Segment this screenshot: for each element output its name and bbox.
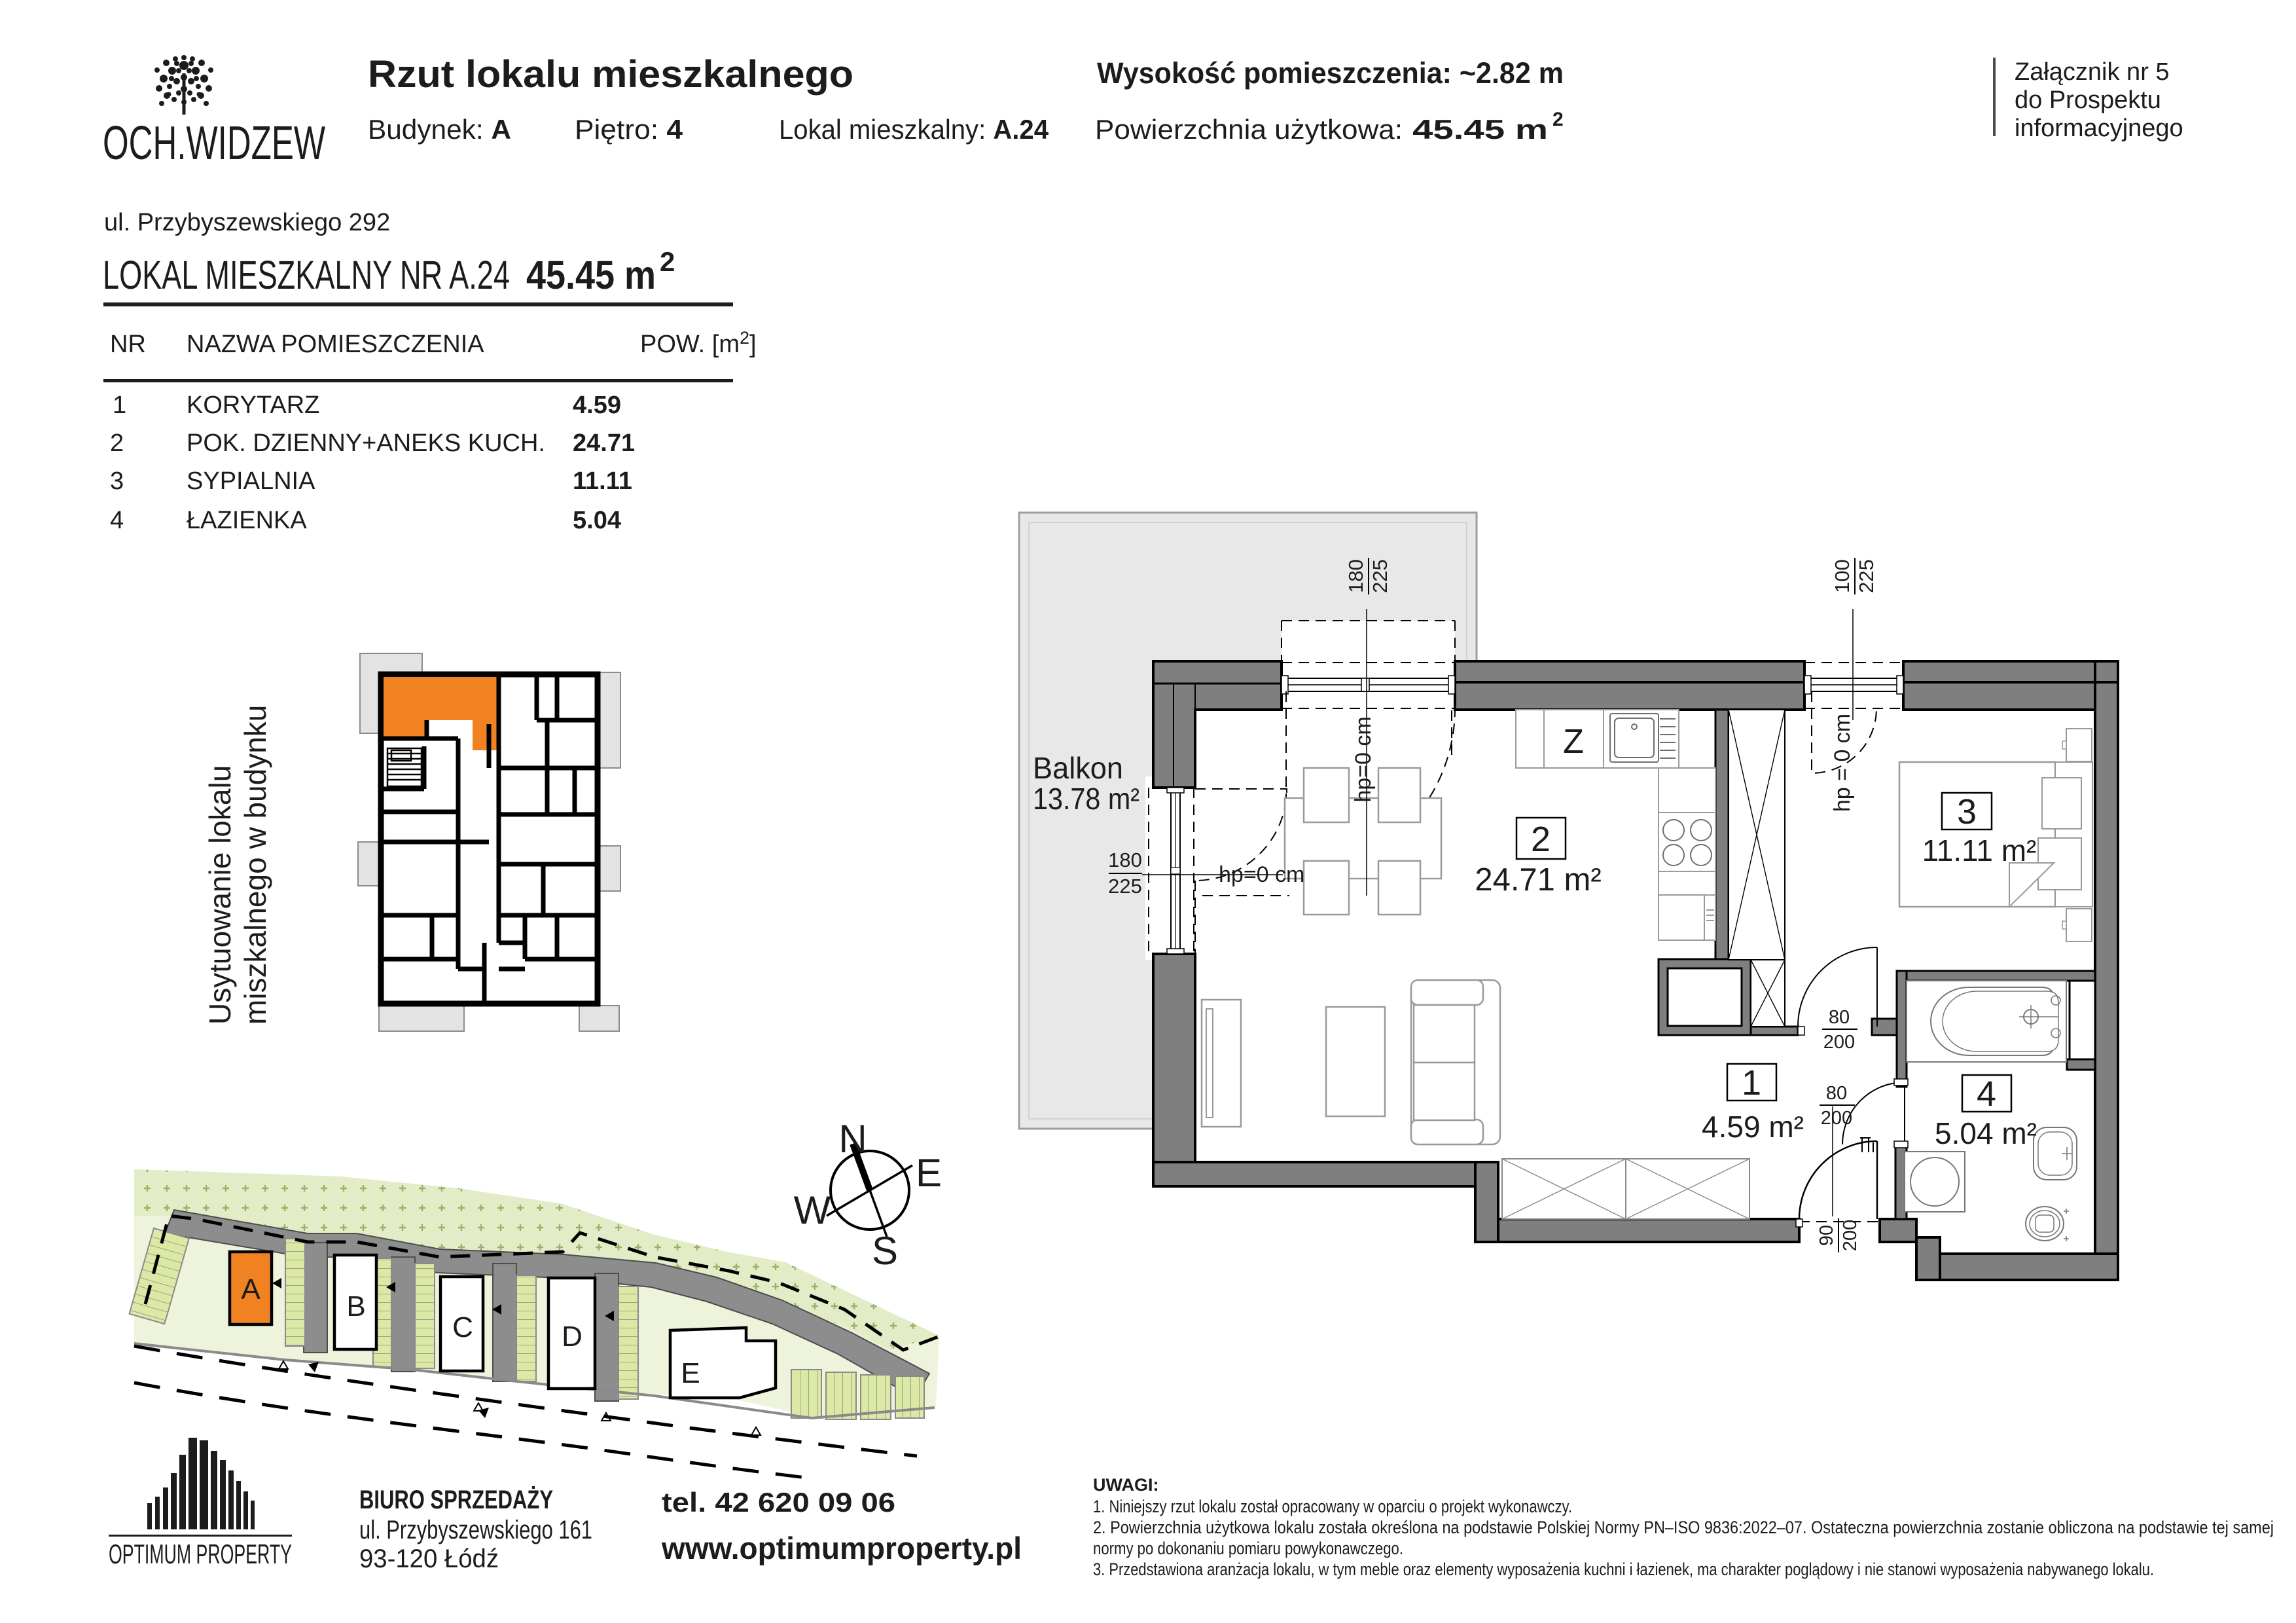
svg-text:5.04: 5.04 — [573, 507, 621, 534]
svg-text:W: W — [794, 1188, 831, 1232]
svg-text:2: 2 — [1552, 109, 1564, 130]
svg-text:E: E — [916, 1151, 942, 1195]
svg-text:NR: NR — [110, 331, 146, 358]
svg-text:225: 225 — [1108, 875, 1142, 898]
svg-text:POW. [m2]: POW. [m2] — [640, 328, 757, 358]
svg-text:3. Przedstawiona aranżacja lok: 3. Przedstawiona aranżacja lokalu, w tym… — [1093, 1559, 2154, 1579]
svg-text:hp=0 cm: hp=0 cm — [1351, 716, 1376, 802]
svg-text:1: 1 — [1742, 1063, 1761, 1103]
svg-text:Budynek: A: Budynek: A — [368, 114, 511, 145]
svg-text:11.11: 11.11 — [573, 467, 632, 495]
svg-text:miszkalnego w budynku: miszkalnego w budynku — [238, 705, 272, 1025]
svg-text:OCH.WIDZEW: OCH.WIDZEW — [103, 117, 325, 170]
svg-text:225: 225 — [1369, 559, 1391, 593]
svg-text:Rzut lokalu mieszkalnego: Rzut lokalu mieszkalnego — [368, 53, 853, 96]
svg-text:E: E — [681, 1357, 700, 1389]
svg-text:4: 4 — [110, 507, 124, 534]
svg-text:5.04 m²: 5.04 m² — [1935, 1116, 2037, 1150]
svg-text:200: 200 — [1821, 1108, 1852, 1129]
svg-text:hp = 0 cm: hp = 0 cm — [1830, 714, 1855, 812]
svg-text:3: 3 — [1957, 792, 1977, 831]
svg-text:ŁAZIENKA: ŁAZIENKA — [187, 507, 307, 534]
svg-text:ul. Przybyszewskiego 161: ul. Przybyszewskiego 161 — [359, 1516, 592, 1544]
svg-text:KORYTARZ: KORYTARZ — [187, 392, 319, 419]
svg-text:90: 90 — [1816, 1225, 1837, 1246]
svg-text:Balkon: Balkon — [1033, 751, 1123, 785]
svg-text:LOKAL MIESZKALNY NR A.24: LOKAL MIESZKALNY NR A.24 — [103, 253, 510, 297]
svg-text:UWAGI:: UWAGI: — [1093, 1475, 1159, 1495]
svg-text:4.59 m²: 4.59 m² — [1702, 1110, 1804, 1144]
svg-text:do Prospektu: do Prospektu — [2015, 86, 2161, 114]
svg-text:2: 2 — [660, 246, 675, 277]
svg-text:OPTIMUM PROPERTY: OPTIMUM PROPERTY — [109, 1539, 292, 1569]
svg-text:Powierzchnia użytkowa:: Powierzchnia użytkowa: — [1095, 114, 1403, 145]
svg-text:ul. Przybyszewskiego 292: ul. Przybyszewskiego 292 — [104, 209, 390, 236]
svg-text:tel. 42 620 09 06: tel. 42 620 09 06 — [662, 1487, 895, 1518]
svg-text:93-120 Łódź: 93-120 Łódź — [359, 1544, 499, 1573]
svg-text:45.45 m: 45.45 m — [526, 253, 656, 297]
svg-text:100: 100 — [1831, 559, 1854, 593]
svg-text:4.59: 4.59 — [573, 392, 621, 419]
svg-text:C: C — [452, 1311, 473, 1343]
svg-text:normy po dokonaniu pomiaru pow: normy po dokonaniu pomiaru powykonawczeg… — [1093, 1539, 1403, 1558]
svg-text:POK. DZIENNY+ANEKS KUCH.: POK. DZIENNY+ANEKS KUCH. — [187, 429, 545, 457]
svg-text:Wysokość pomieszczenia: ~2.82: Wysokość pomieszczenia: ~2.82 m — [1097, 56, 1564, 90]
svg-text:80: 80 — [1826, 1083, 1847, 1104]
svg-text:24.71: 24.71 — [573, 429, 635, 457]
svg-text:Lokal mieszkalny: A.24: Lokal mieszkalny: A.24 — [779, 114, 1049, 145]
svg-text:D: D — [562, 1321, 583, 1353]
svg-text:225: 225 — [1855, 559, 1878, 593]
svg-text:11.11 m²: 11.11 m² — [1922, 833, 2037, 867]
svg-text:13.78 m²: 13.78 m² — [1033, 782, 1139, 816]
svg-text:200: 200 — [1840, 1220, 1861, 1251]
svg-text:2: 2 — [1531, 820, 1551, 859]
svg-text:80: 80 — [1829, 1007, 1850, 1028]
svg-text:3: 3 — [110, 467, 124, 495]
svg-text:Załącznik nr 5: Załącznik nr 5 — [2015, 58, 2170, 86]
svg-text:www.optimumproperty.pl: www.optimumproperty.pl — [661, 1531, 1022, 1565]
svg-text:SYPIALNIA: SYPIALNIA — [187, 467, 315, 495]
svg-text:45.45 m: 45.45 m — [1412, 114, 1548, 145]
svg-text:4: 4 — [1977, 1074, 1996, 1114]
svg-text:2. Powierzchnia użytkowa lokal: 2. Powierzchnia użytkowa lokalu została … — [1093, 1518, 2274, 1537]
svg-text:B: B — [346, 1290, 365, 1322]
svg-text:1: 1 — [113, 392, 126, 419]
svg-text:informacyjnego: informacyjnego — [2015, 115, 2183, 142]
svg-text:NAZWA POMIESZCZENIA: NAZWA POMIESZCZENIA — [187, 331, 484, 358]
svg-text:Z: Z — [1563, 723, 1584, 761]
svg-text:2: 2 — [110, 429, 124, 457]
svg-text:BIURO SPRZEDAŻY: BIURO SPRZEDAŻY — [359, 1486, 553, 1514]
svg-text:Usytuowanie lokalu: Usytuowanie lokalu — [203, 765, 237, 1025]
svg-text:A: A — [241, 1273, 260, 1305]
svg-text:1. Niniejszy rzut lokalu zosta: 1. Niniejszy rzut lokalu został opracowa… — [1093, 1497, 1572, 1516]
svg-text:Piętro: 4: Piętro: 4 — [575, 114, 683, 145]
svg-text:S: S — [872, 1229, 898, 1273]
svg-text:N: N — [838, 1117, 867, 1161]
svg-text:180: 180 — [1344, 559, 1367, 593]
svg-text:24.71 m²: 24.71 m² — [1475, 862, 1601, 898]
svg-text:180: 180 — [1108, 848, 1142, 871]
svg-text:hp=0 cm: hp=0 cm — [1219, 862, 1304, 887]
svg-text:200: 200 — [1823, 1032, 1855, 1053]
